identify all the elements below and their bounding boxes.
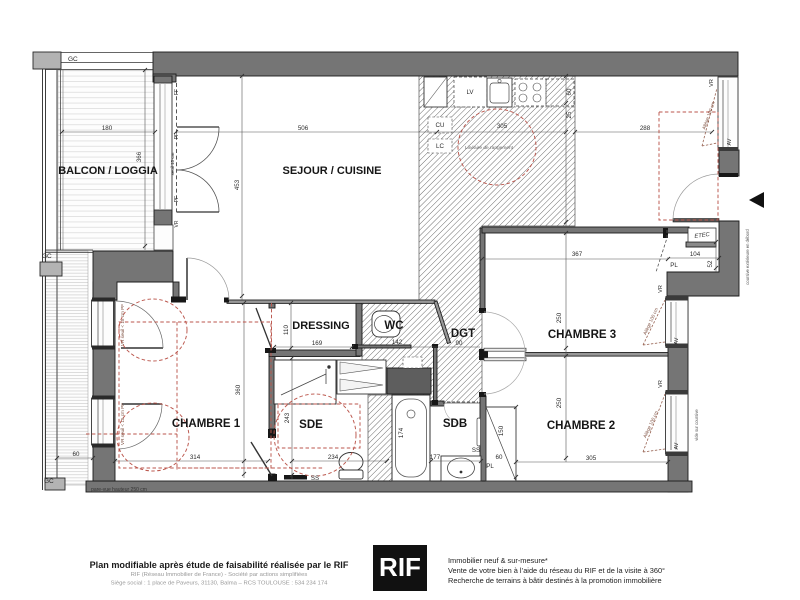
- svg-text:RIF: RIF: [379, 552, 421, 582]
- svg-text:305: 305: [586, 455, 597, 462]
- svg-text:PF: PF: [174, 133, 180, 139]
- svg-text:vide sur coursive: vide sur coursive: [694, 409, 699, 441]
- svg-text:305: 305: [497, 123, 508, 130]
- svg-text:52: 52: [707, 260, 714, 267]
- svg-text:SDE: SDE: [299, 419, 323, 431]
- svg-text:CHAMBRE 1: CHAMBRE 1: [172, 418, 241, 430]
- svg-text:seuil 15 cm: seuil 15 cm: [170, 152, 175, 175]
- svg-text:PL: PL: [486, 463, 494, 470]
- svg-text:SS: SS: [311, 475, 319, 482]
- svg-text:BALCON / LOGGIA: BALCON / LOGGIA: [58, 165, 158, 177]
- svg-text:360: 360: [235, 384, 242, 395]
- svg-text:FF: FF: [174, 89, 180, 95]
- svg-text:AV: AV: [674, 337, 680, 344]
- svg-text:25: 25: [566, 111, 573, 118]
- svg-text:GC: GC: [68, 56, 78, 63]
- svg-text:Immobilier neuf & sur-mesure*: Immobilier neuf & sur-mesure*: [448, 556, 548, 565]
- svg-text:PL: PL: [670, 262, 678, 269]
- svg-text:366: 366: [136, 151, 143, 162]
- svg-text:VR: VR: [658, 285, 664, 293]
- svg-text:234: 234: [328, 454, 339, 461]
- svg-text:180: 180: [102, 125, 113, 132]
- svg-text:104: 104: [690, 251, 701, 258]
- svg-text:250: 250: [556, 397, 563, 408]
- svg-text:pare-vue hauteur 250 cm: pare-vue hauteur 250 cm: [91, 487, 147, 493]
- svg-text:60: 60: [73, 451, 80, 458]
- svg-text:DRESSING: DRESSING: [292, 320, 349, 332]
- svg-text:VR: VR: [709, 79, 715, 87]
- svg-text:CHAMBRE 3: CHAMBRE 3: [548, 329, 616, 341]
- svg-text:WC: WC: [384, 320, 403, 332]
- svg-text:169: 169: [312, 340, 323, 347]
- svg-text:RIF (Réseau Immobilier de Fran: RIF (Réseau Immobilier de France) - Soci…: [131, 572, 308, 578]
- svg-text:LC: LC: [436, 143, 444, 150]
- svg-text:243: 243: [284, 412, 291, 423]
- svg-text:PF: PF: [174, 196, 180, 202]
- svg-text:SS: SS: [472, 447, 480, 454]
- svg-text:314: 314: [190, 454, 201, 461]
- svg-text:453: 453: [234, 179, 241, 190]
- svg-text:288: 288: [640, 125, 651, 132]
- svg-text:Plan modifiable après étude de: Plan modifiable après étude de faisabili…: [90, 560, 349, 570]
- svg-text:AV: AV: [674, 442, 680, 449]
- svg-text:Linéaire de rangement: Linéaire de rangement: [465, 145, 514, 151]
- svg-text:142: 142: [392, 339, 403, 346]
- svg-text:CU: CU: [436, 122, 445, 129]
- svg-text:90: 90: [456, 340, 463, 347]
- svg-text:VR: VR: [658, 380, 664, 388]
- svg-text:GC: GC: [44, 478, 54, 485]
- svg-text:DGT: DGT: [451, 328, 475, 340]
- svg-text:GC: GC: [42, 253, 52, 260]
- svg-text:Siège social : 1 place de Pave: Siège social : 1 place de Paveurs, 31130…: [111, 581, 328, 587]
- svg-text:250: 250: [556, 312, 563, 323]
- svg-text:Vente de votre bien à l’aide d: Vente de votre bien à l’aide du réseau d…: [448, 566, 665, 575]
- svg-text:150: 150: [498, 425, 505, 436]
- svg-text:60: 60: [566, 88, 573, 95]
- svg-text:VR seuil < 15 cm PF: VR seuil < 15 cm PF: [120, 304, 125, 346]
- svg-text:367: 367: [572, 251, 583, 258]
- svg-text:SEJOUR / CUISINE: SEJOUR / CUISINE: [282, 165, 381, 177]
- svg-text:110: 110: [283, 325, 290, 335]
- svg-text:Recherche de terrains à bâtir: Recherche de terrains à bâtir destinés à…: [448, 576, 662, 585]
- svg-text:CHAMBRE 2: CHAMBRE 2: [547, 420, 615, 432]
- svg-text:177: 177: [430, 454, 441, 461]
- svg-text:VR seuil < 15 cm PF: VR seuil < 15 cm PF: [120, 403, 125, 445]
- svg-text:174: 174: [398, 427, 405, 438]
- svg-text:VR: VR: [174, 220, 180, 227]
- svg-text:LV: LV: [466, 89, 474, 96]
- svg-text:coursive extérieure en débord: coursive extérieure en débord: [745, 229, 750, 285]
- svg-text:60: 60: [496, 454, 503, 461]
- svg-text:SDB: SDB: [443, 418, 467, 430]
- svg-text:AV: AV: [727, 138, 733, 145]
- svg-text:506: 506: [298, 125, 309, 132]
